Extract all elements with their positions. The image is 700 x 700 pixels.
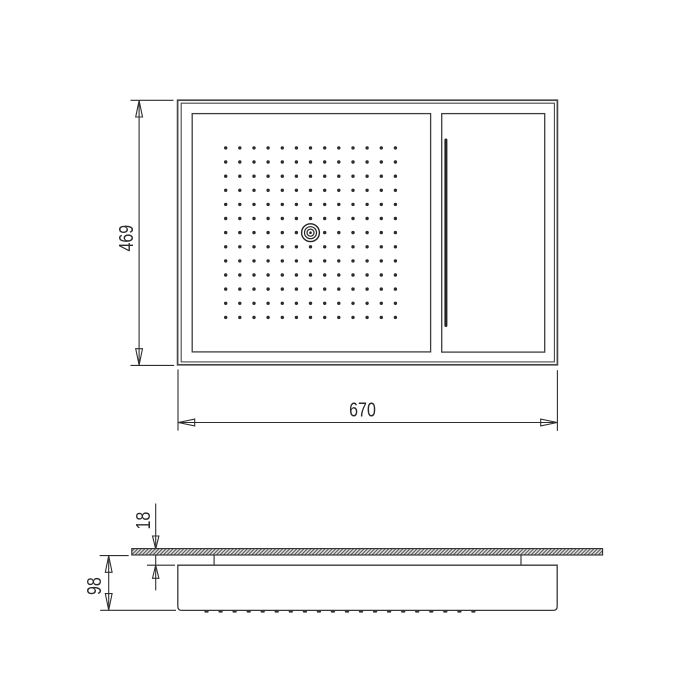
svg-text:98: 98 [82, 577, 105, 595]
svg-text:469: 469 [114, 225, 137, 252]
svg-text:18: 18 [131, 512, 154, 530]
svg-text:670: 670 [349, 398, 376, 421]
